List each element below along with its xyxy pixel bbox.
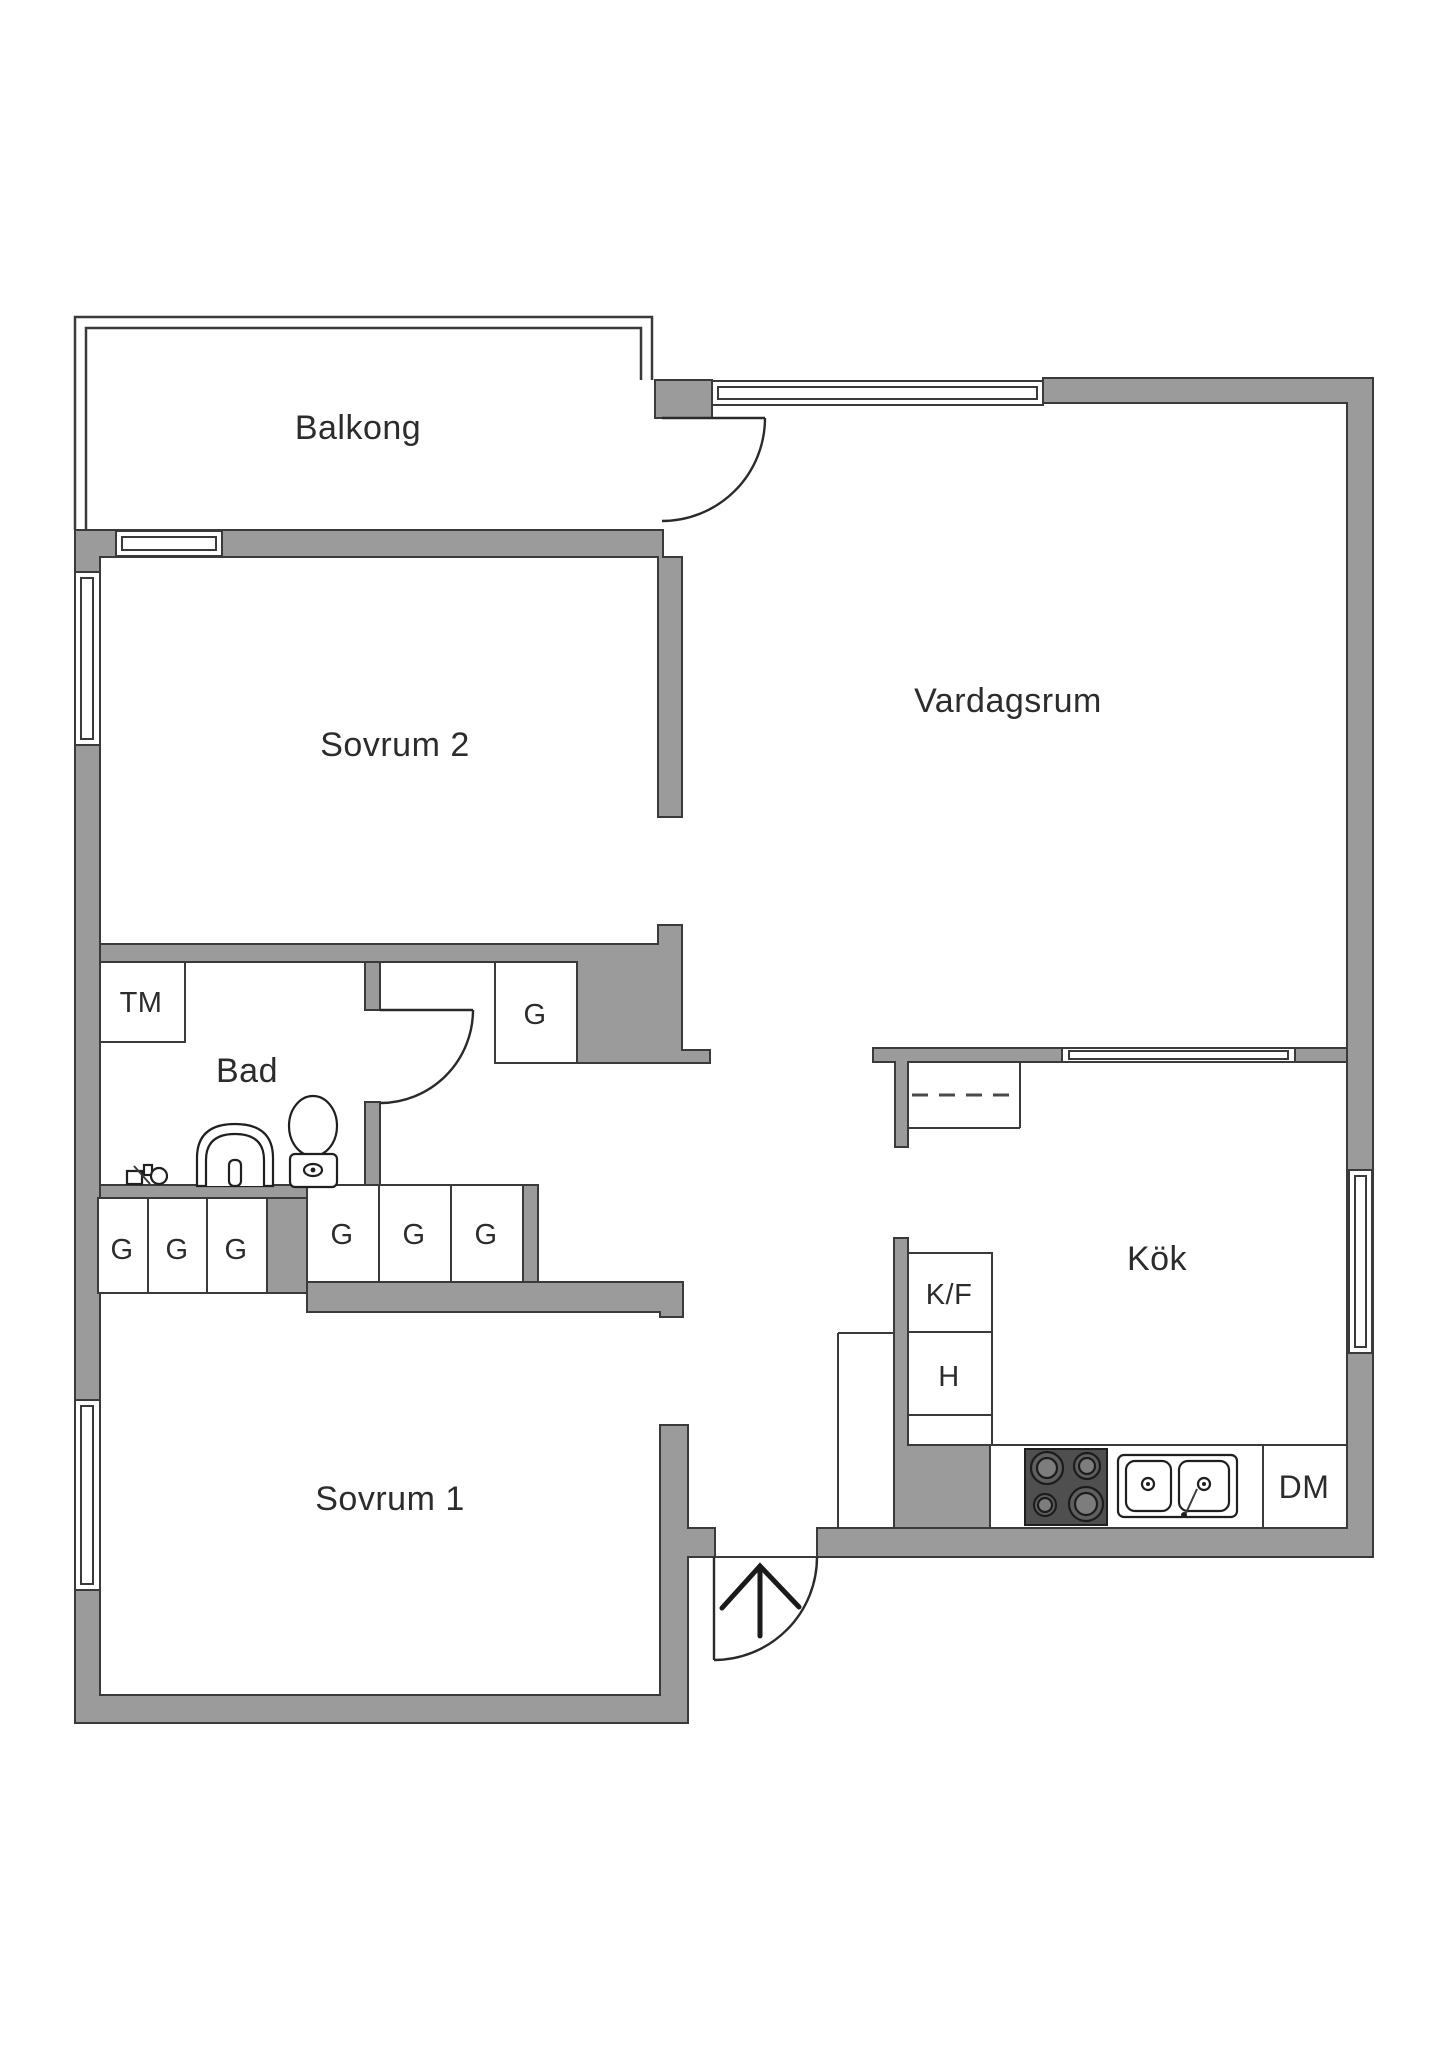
- window-bedroom2-left: [75, 572, 100, 745]
- wardrobe-label: G: [110, 1234, 133, 1266]
- bedroom1-label: Sovrum 1: [315, 1480, 465, 1518]
- wardrobe-label: G: [330, 1219, 353, 1251]
- wall-bathroom-right-upper: [365, 962, 380, 1010]
- window-balcony-wall: [116, 531, 222, 556]
- entry-arrow-icon: [722, 1566, 799, 1636]
- kitchen-dashed-unit: [908, 1062, 1020, 1128]
- window-bedroom1-left: [75, 1400, 100, 1590]
- bathroom-door: [380, 1010, 473, 1103]
- toilet-icon: [289, 1096, 337, 1187]
- bathroom-label: Bad: [216, 1052, 278, 1090]
- window-living-room-top: [712, 381, 1043, 405]
- kitchen-sink-icon: [1118, 1455, 1237, 1518]
- wall-bedroom2-bottom: [100, 925, 710, 1063]
- stove-icon: [1025, 1449, 1107, 1525]
- floor-plan: Balkong Sovrum 2 Vardagsrum Bad Sovrum 1…: [0, 0, 1448, 2048]
- wall-block-between-wardrobes: [267, 1198, 307, 1293]
- wall-hall-bottom: [307, 1282, 683, 1317]
- living-room-label: Vardagsrum: [914, 682, 1102, 720]
- bathroom-tap-icon: [127, 1165, 167, 1184]
- wardrobe-label: G: [523, 999, 546, 1031]
- wardrobe-label: G: [224, 1234, 247, 1266]
- window-kitchen-right: [1349, 1170, 1372, 1353]
- windows: [75, 381, 1372, 1590]
- floor-plan-drawing: Balkong Sovrum 2 Vardagsrum Bad Sovrum 1…: [0, 0, 1448, 2048]
- window-kitchen-pass-through: [1062, 1048, 1295, 1062]
- wardrobe-label: G: [165, 1234, 188, 1266]
- wall-balcony-door-post: [655, 380, 712, 418]
- entry-door: [714, 1557, 817, 1660]
- kitchen-label: Kök: [1127, 1240, 1188, 1278]
- bathroom-sink-icon: [197, 1124, 273, 1186]
- balcony-door: [662, 418, 765, 521]
- tall-cabinet-label: H: [938, 1361, 959, 1393]
- dishwasher-label: DM: [1279, 1469, 1330, 1505]
- wall-hall-wardrobe-post: [523, 1185, 538, 1282]
- bedroom2-label: Sovrum 2: [320, 726, 470, 764]
- balcony-label: Balkong: [295, 409, 421, 447]
- wall-outer-left: [75, 530, 715, 1723]
- hall-niche: [838, 1333, 894, 1528]
- wardrobe-label: G: [474, 1219, 497, 1251]
- wardrobe-label: G: [402, 1219, 425, 1251]
- fridge-freezer-label: K/F: [926, 1279, 973, 1311]
- washing-machine-label: TM: [120, 987, 163, 1019]
- labels: Balkong Sovrum 2 Vardagsrum Bad Sovrum 1…: [110, 409, 1329, 1518]
